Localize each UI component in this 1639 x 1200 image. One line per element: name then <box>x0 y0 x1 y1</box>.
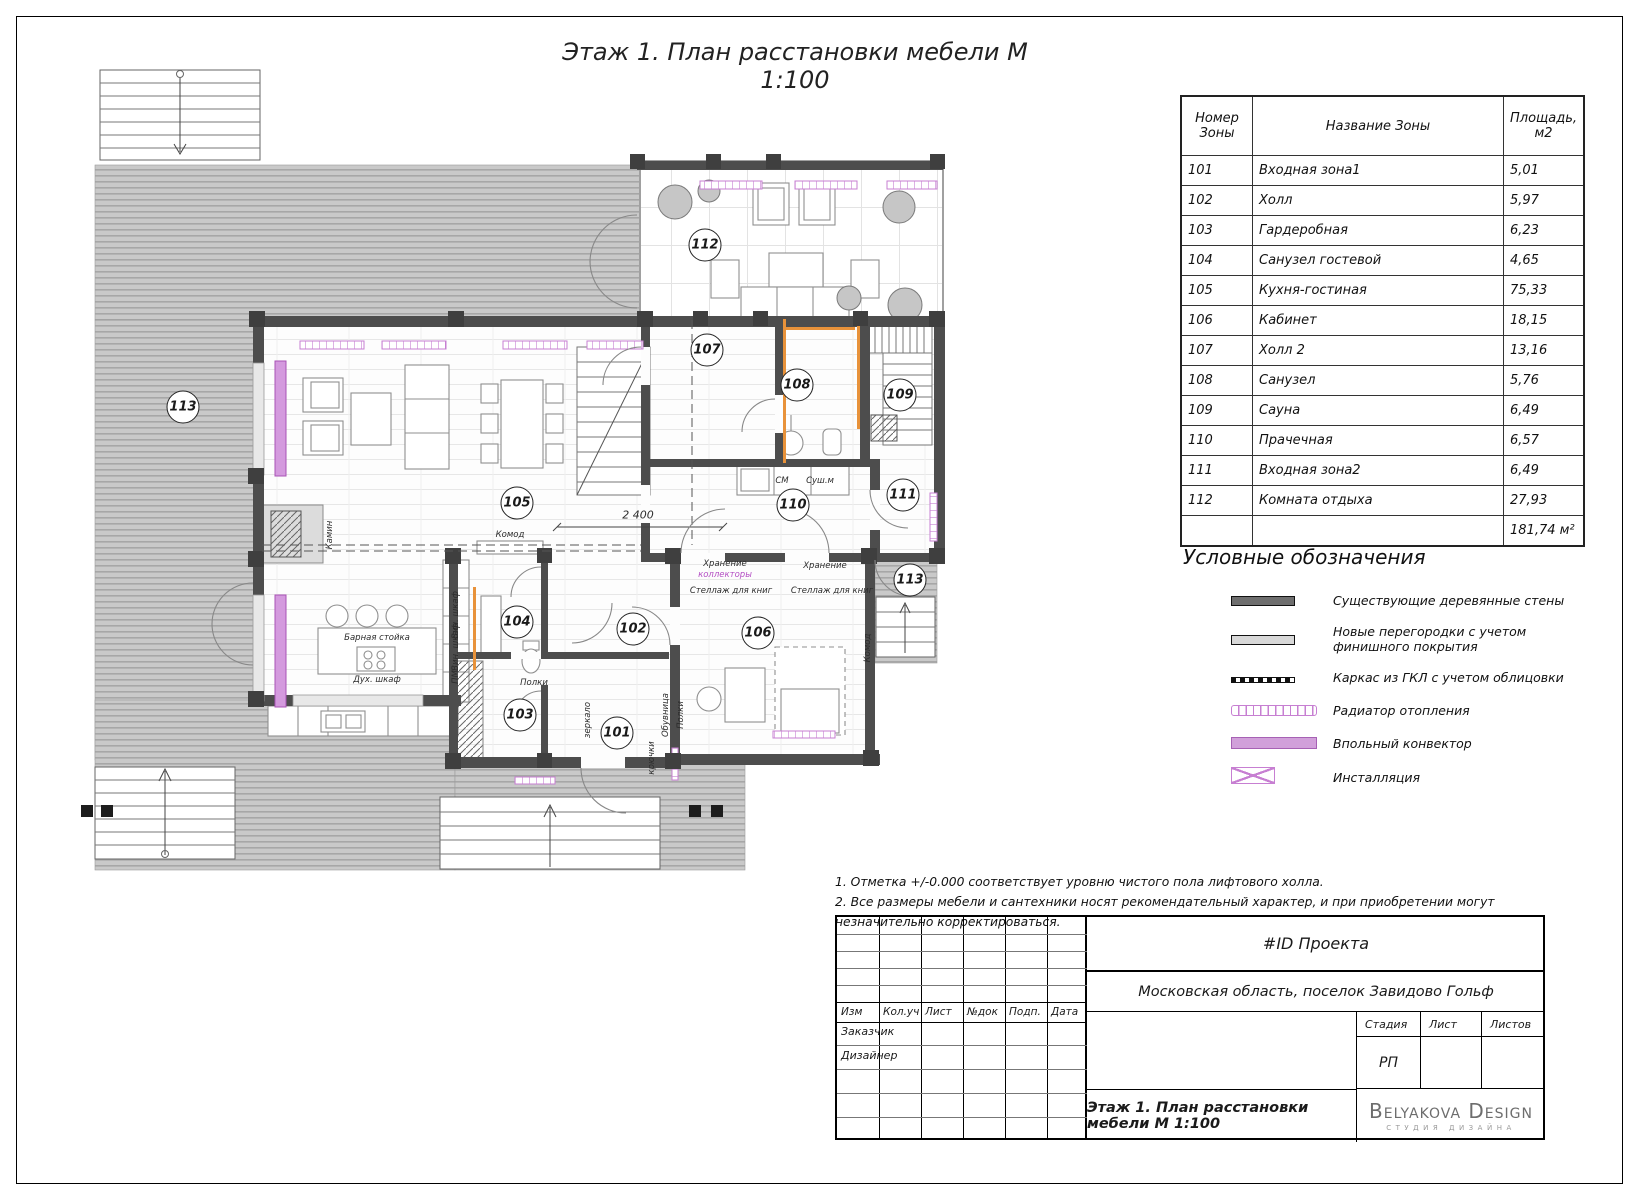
zone-name: Гардеробная <box>1253 216 1504 246</box>
stage-header-row: Стадия Лист Листов <box>1357 1012 1545 1037</box>
stage-value-row: РП <box>1357 1037 1545 1089</box>
zone-row: 102Холл5,97 <box>1181 186 1584 216</box>
legend-item: Радиатор отопления <box>1183 701 1583 720</box>
zone-area: 13,16 <box>1504 336 1585 366</box>
zone-name: Холл <box>1253 186 1504 216</box>
room-label-104: 104 <box>501 606 534 639</box>
zone-name: Холл 2 <box>1253 336 1504 366</box>
legend: Условные обозначения Существующие деревя… <box>1183 545 1583 802</box>
zone-row: 104Санузел гостевой4,65 <box>1181 246 1584 276</box>
legend-item: Существующие деревянные стены <box>1183 591 1583 610</box>
legend-label: Существующие деревянные стены <box>1333 593 1564 608</box>
plan-label: зеркало <box>583 702 593 738</box>
zone-row: 111Входная зона26,49 <box>1181 456 1584 486</box>
room-label-111: 111 <box>887 479 920 512</box>
brand: Belyakova Design студия дизайна <box>1357 1089 1545 1142</box>
plan-label: Камин <box>325 521 335 550</box>
rev-col-podp: Подп. <box>1005 1003 1047 1022</box>
zone-row: 101Входная зона15,01 <box>1181 156 1584 186</box>
stage-label: Стадия <box>1357 1012 1421 1036</box>
zone-row: 109Сауна6,49 <box>1181 396 1584 426</box>
zone-number: 109 <box>1181 396 1253 426</box>
zone-area: 5,76 <box>1504 366 1585 396</box>
zone-number: 111 <box>1181 456 1253 486</box>
title-block: Изм Кол.уч Лист №док Подп. Дата Заказчик… <box>835 915 1545 1140</box>
zone-name: Сауна <box>1253 396 1504 426</box>
legend-item: Новые перегородки с учетом финишного пок… <box>1183 624 1583 654</box>
zone-area: 6,49 <box>1504 396 1585 426</box>
stage-value: РП <box>1357 1037 1421 1088</box>
plan-label: ПМ <box>451 670 461 684</box>
customer-label: Заказчик <box>841 1025 894 1038</box>
zone-area: 6,23 <box>1504 216 1585 246</box>
zone-number: 107 <box>1181 336 1253 366</box>
plan-label: Полки <box>520 678 548 688</box>
plan-label: Барная стойка <box>344 633 410 643</box>
plan-label: Комод <box>496 530 525 540</box>
plan-label: СМ <box>775 476 788 486</box>
plan-label: Хранение <box>803 561 847 571</box>
existing-wall-symbol <box>1231 596 1295 606</box>
zone-number: 106 <box>1181 306 1253 336</box>
legend-label: Новые перегородки с учетом финишного пок… <box>1333 624 1583 654</box>
legend-title: Условные обозначения <box>1183 545 1583 569</box>
zones-total-area: 181,74 м² <box>1504 516 1585 547</box>
zone-name: Входная зона2 <box>1253 456 1504 486</box>
room-label-108: 108 <box>781 369 814 402</box>
drawing-title: Этаж 1. План расстановки мебели М 1:100 <box>1087 1089 1357 1142</box>
zone-area: 18,15 <box>1504 306 1585 336</box>
plan-label: 2 400 <box>622 509 654 522</box>
zone-row: 112Комната отдыха27,93 <box>1181 486 1584 516</box>
zone-name: Санузел <box>1253 366 1504 396</box>
zone-number: 110 <box>1181 426 1253 456</box>
zone-row: 107Холл 213,16 <box>1181 336 1584 366</box>
zones-header-area: Площадь, м2 <box>1504 96 1585 156</box>
room-label-102: 102 <box>617 613 650 646</box>
legend-label: Впольный конвектор <box>1333 736 1472 751</box>
installation-symbol <box>1231 767 1275 784</box>
floor-plan: 1011021031041051061071081091101111121131… <box>25 55 975 875</box>
rev-col-izm: Изм <box>837 1003 879 1022</box>
gkl-frame-symbol <box>1231 677 1295 683</box>
zone-number: 104 <box>1181 246 1253 276</box>
zone-area: 5,01 <box>1504 156 1585 186</box>
zone-number: 102 <box>1181 186 1253 216</box>
zone-number: 108 <box>1181 366 1253 396</box>
room-label-103: 103 <box>504 699 537 732</box>
room-label-113: 113 <box>167 391 200 424</box>
designer-label: Дизайнер <box>841 1049 897 1062</box>
zone-name: Кухня-гостиная <box>1253 276 1504 306</box>
brand-name: Belyakova Design <box>1369 1099 1533 1123</box>
title-block-main: #ID Проекта Московская область, поселок … <box>1087 917 1545 1138</box>
legend-item: Каркас из ГКЛ с учетом облицовки <box>1183 668 1583 687</box>
zone-name: Комната отдыха <box>1253 486 1504 516</box>
room-label-110: 110 <box>777 489 810 522</box>
new-partition-symbol <box>1231 635 1295 645</box>
room-label-107: 107 <box>691 334 724 367</box>
note-1: 1. Отметка +/-0.000 соответствует уровню… <box>835 872 1515 892</box>
plan-label: Вин. шкаф <box>451 623 461 671</box>
plan-label: Полки <box>676 701 686 729</box>
room-label-113: 113 <box>894 564 927 597</box>
project-id: #ID Проекта <box>1087 917 1545 972</box>
plan-label: Суш.м <box>806 476 834 486</box>
legend-item: Инсталляция <box>1183 767 1583 788</box>
zone-area: 5,97 <box>1504 186 1585 216</box>
legend-label: Радиатор отопления <box>1333 703 1470 718</box>
sheet-value <box>1421 1037 1482 1088</box>
plan-label: Хранение <box>703 559 747 569</box>
rev-col-list: Лист <box>921 1003 963 1022</box>
zone-row: 103Гардеробная6,23 <box>1181 216 1584 246</box>
zone-area: 6,49 <box>1504 456 1585 486</box>
zones-table: Номер Зоны Название Зоны Площадь, м2 101… <box>1180 95 1585 547</box>
zone-name: Санузел гостевой <box>1253 246 1504 276</box>
title-block-revisions: Изм Кол.уч Лист №док Подп. Дата Заказчик… <box>837 917 1087 1138</box>
radiator-symbol <box>1231 705 1317 716</box>
zone-area: 27,93 <box>1504 486 1585 516</box>
zone-name: Прачечная <box>1253 426 1504 456</box>
zone-row: 110Прачечная6,57 <box>1181 426 1584 456</box>
legend-item: Впольный конвектор <box>1183 734 1583 753</box>
revision-header-row: Изм Кол.уч Лист №док Подп. Дата <box>837 1002 1087 1023</box>
zone-number: 101 <box>1181 156 1253 186</box>
drawing-sheet: Этаж 1. План расстановки мебели М 1:100 <box>0 0 1639 1200</box>
plan-label: Обувница <box>661 693 671 737</box>
rev-col-dok: №док <box>963 1003 1005 1022</box>
legend-label: Инсталляция <box>1333 770 1420 785</box>
room-label-101: 101 <box>601 717 634 750</box>
zone-number: 112 <box>1181 486 1253 516</box>
zone-number: 105 <box>1181 276 1253 306</box>
legend-label: Каркас из ГКЛ с учетом облицовки <box>1333 670 1564 685</box>
plan-label: Стеллаж для книг <box>690 586 772 596</box>
floor-plan-drawing <box>25 55 975 875</box>
floor-convector-symbol <box>1231 737 1317 749</box>
zone-name: Кабинет <box>1253 306 1504 336</box>
plan-label: крючки <box>647 741 657 774</box>
plan-label: коллекторы <box>698 570 752 580</box>
sheet-label: Лист <box>1421 1012 1482 1036</box>
rev-col-koluch: Кол.уч <box>879 1003 921 1022</box>
zone-area: 75,33 <box>1504 276 1585 306</box>
zone-name: Входная зона1 <box>1253 156 1504 186</box>
brand-subtitle: студия дизайна <box>1386 1124 1516 1132</box>
plan-label: Комод <box>863 634 873 663</box>
zones-header-num: Номер Зоны <box>1181 96 1253 156</box>
zone-area: 6,57 <box>1504 426 1585 456</box>
zones-header-name: Название Зоны <box>1253 96 1504 156</box>
room-label-109: 109 <box>884 379 917 412</box>
zones-table-body: 101Входная зона15,01102Холл5,97103Гардер… <box>1181 156 1584 516</box>
room-label-112: 112 <box>689 229 722 262</box>
plan-label: Дух. шкаф <box>353 675 401 685</box>
zone-number: 103 <box>1181 216 1253 246</box>
plan-label: Стеллаж для книг <box>791 586 873 596</box>
zone-row: 108Санузел5,76 <box>1181 366 1584 396</box>
room-label-105: 105 <box>501 487 534 520</box>
room-label-106: 106 <box>742 617 775 650</box>
zones-total-row: 181,74 м² <box>1181 516 1584 547</box>
zone-area: 4,65 <box>1504 246 1585 276</box>
sheets-label: Листов <box>1482 1012 1545 1036</box>
empty-cell <box>1087 1012 1357 1089</box>
zone-row: 105Кухня-гостиная75,33 <box>1181 276 1584 306</box>
zone-row: 106Кабинет18,15 <box>1181 306 1584 336</box>
legend-items: Существующие деревянные стеныНовые перег… <box>1183 591 1583 788</box>
rev-col-data: Дата <box>1047 1003 1087 1022</box>
project-address: Московская область, поселок Завидово Гол… <box>1087 972 1545 1012</box>
